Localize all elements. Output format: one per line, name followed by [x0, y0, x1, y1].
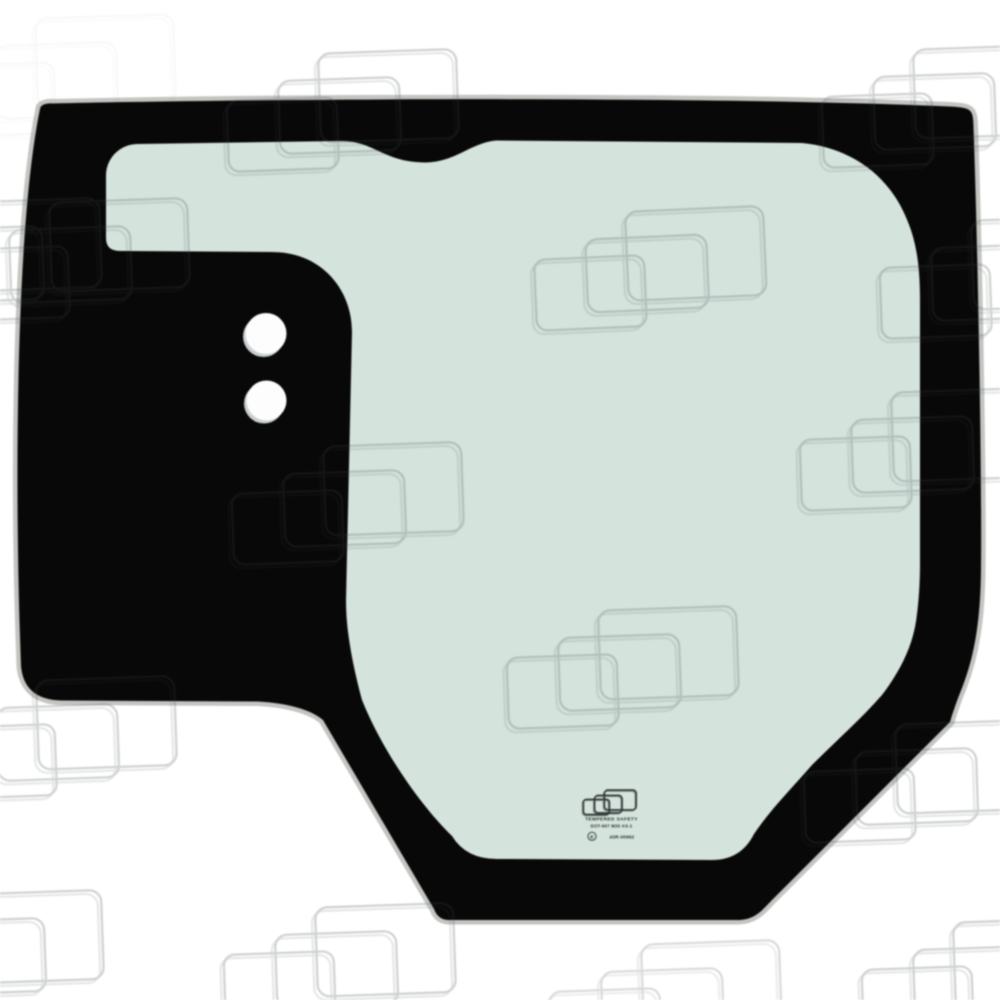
svg-text:DOT-607 M30 AS-1: DOT-607 M30 AS-1 [591, 824, 633, 829]
svg-text:43R-00962: 43R-00962 [610, 834, 635, 839]
svg-text:TEMPERED SAFETY: TEMPERED SAFETY [585, 816, 638, 821]
